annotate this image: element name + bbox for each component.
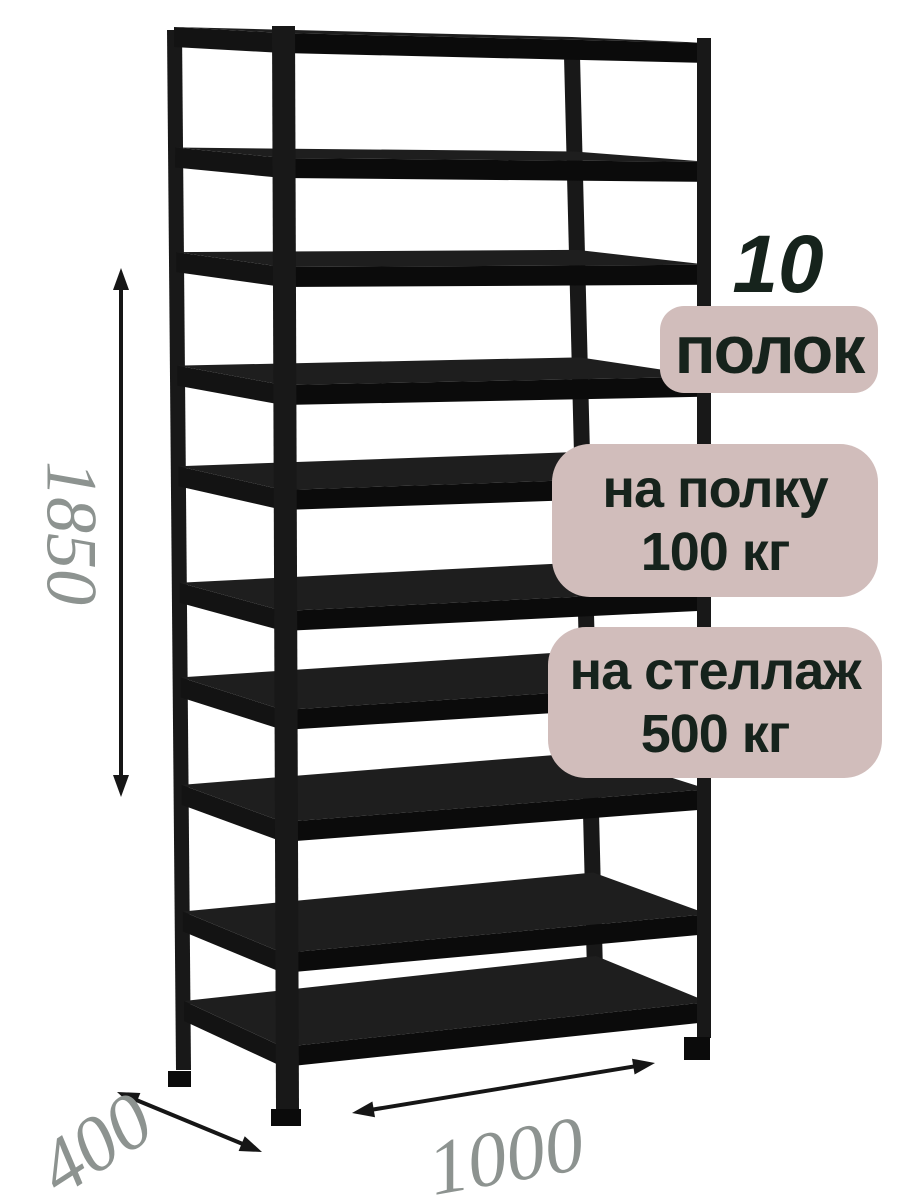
product-image: 1850 400 1000 10 полок на полку 100 кг н…: [0, 0, 900, 1200]
height-dimension-label: 1850: [30, 461, 113, 605]
shelf-count-number: 10: [732, 218, 823, 312]
shelf-count-badge: полок: [660, 306, 878, 393]
rack-foot-back-left: [168, 1071, 191, 1087]
per-shelf-load-line1: на полку: [602, 458, 827, 521]
width-dimension-arrow: [369, 1066, 637, 1110]
per-shelf-load-badge: на полку 100 кг: [552, 444, 878, 597]
per-rack-load-line2: 500 кг: [641, 703, 790, 766]
rack-post-front-left: [272, 26, 299, 1110]
per-rack-load-line1: на стеллаж: [569, 640, 860, 703]
rack-foot-front-right: [684, 1037, 710, 1060]
depth-dimension-arrow-head: [239, 1136, 262, 1152]
per-rack-load-badge: на стеллаж 500 кг: [548, 627, 882, 778]
height-dimension-arrow-head: [113, 775, 129, 797]
shelf-front: [283, 158, 708, 182]
rack-foot-front-left: [271, 1109, 301, 1126]
shelving-rack-graphic: [0, 0, 900, 1200]
height-dimension-arrow-head: [113, 268, 129, 290]
shelf-front: [283, 265, 708, 287]
width-dimension-arrow-head: [632, 1059, 655, 1075]
shelf-count-label: полок: [675, 311, 864, 389]
per-shelf-load-line2: 100 кг: [641, 521, 790, 584]
width-dimension-arrow-head: [352, 1102, 375, 1118]
